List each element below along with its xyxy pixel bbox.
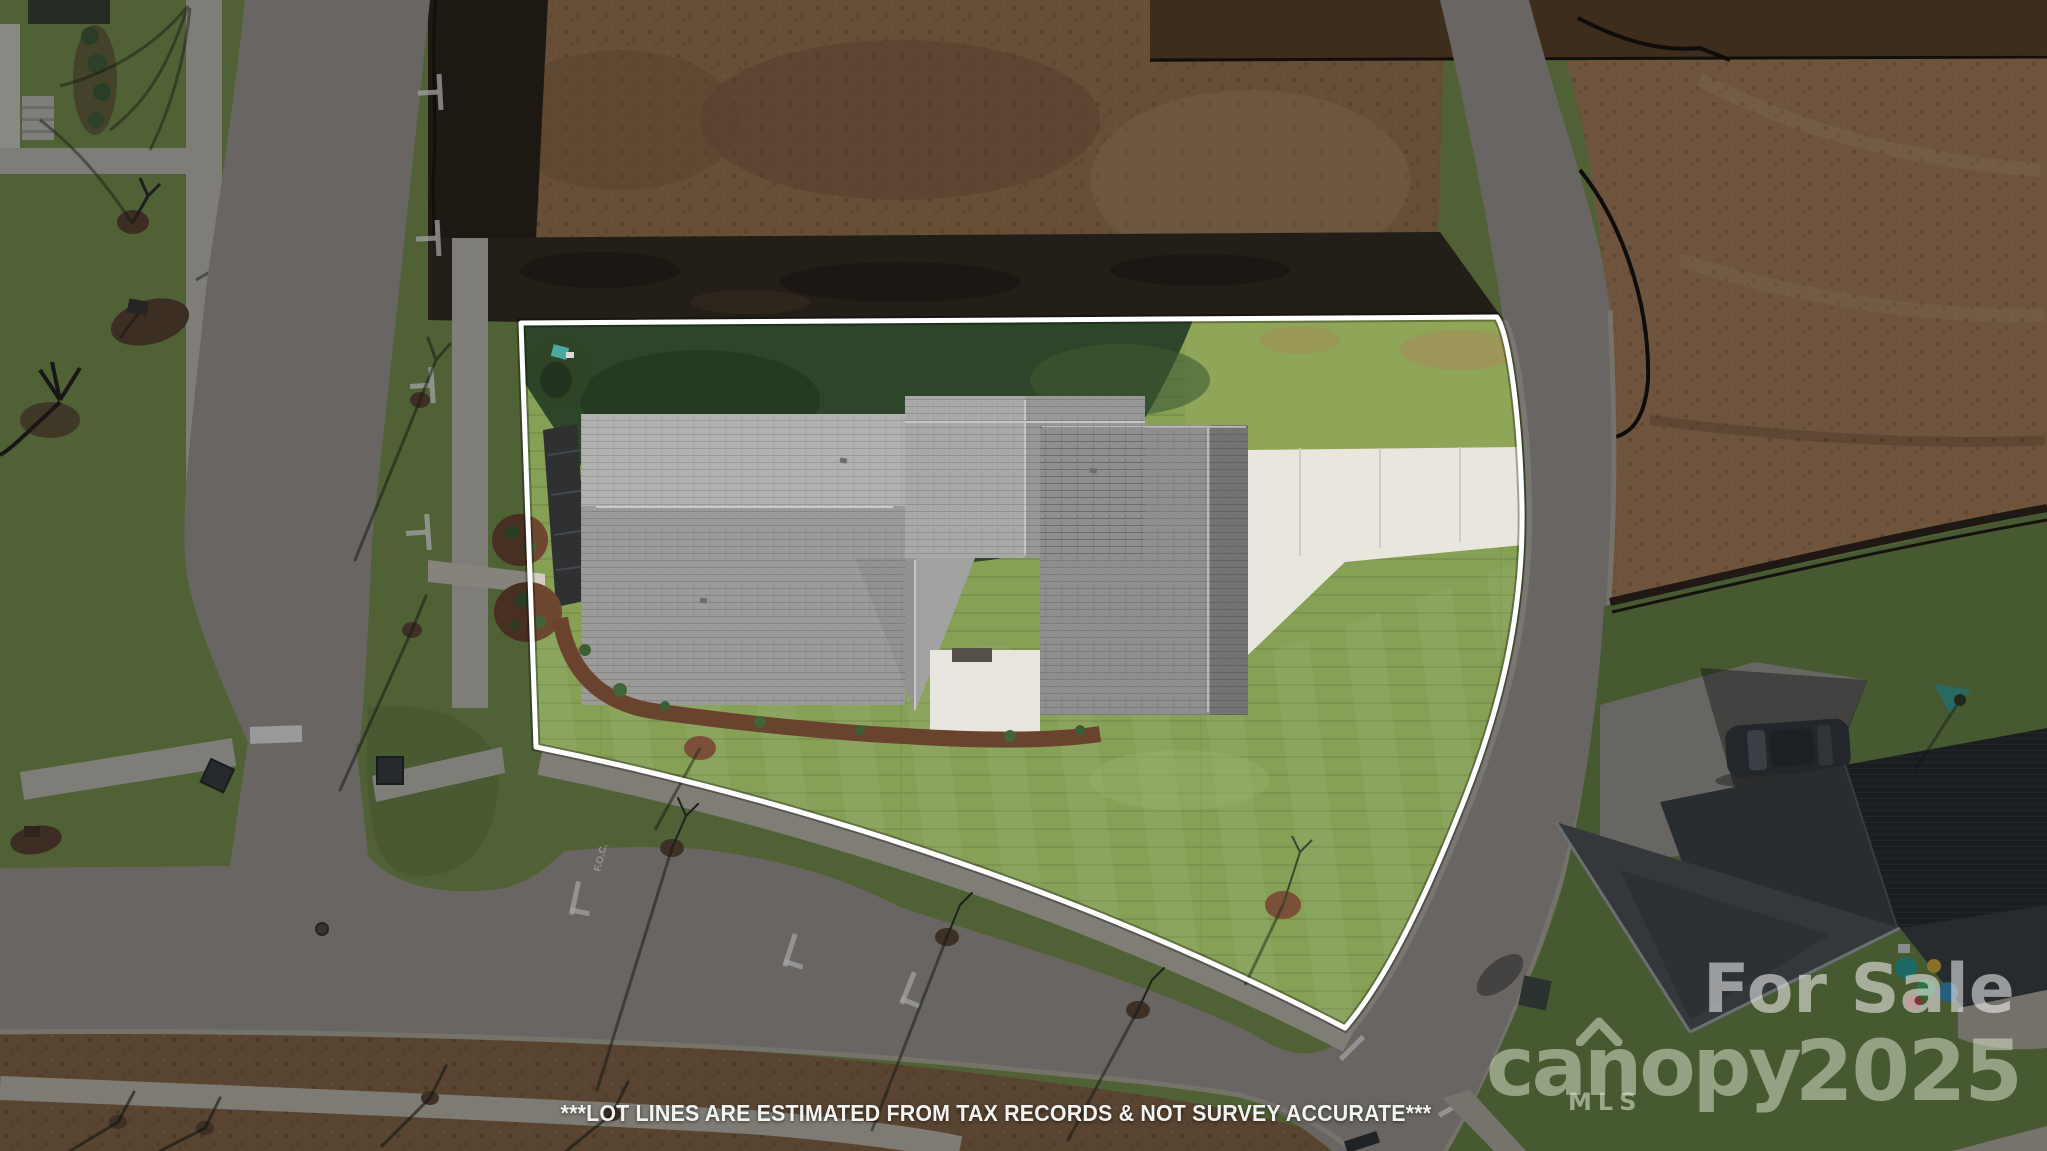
aerial-lot-photo: F.O.C. — [0, 0, 2047, 1151]
aerial-scene: F.O.C. — [0, 0, 2047, 1151]
lot-lines-disclaimer: ***LOT LINES ARE ESTIMATED FROM TAX RECO… — [560, 1100, 1431, 1127]
subject-house-roof — [543, 396, 1248, 738]
entry-patio — [930, 650, 1040, 738]
